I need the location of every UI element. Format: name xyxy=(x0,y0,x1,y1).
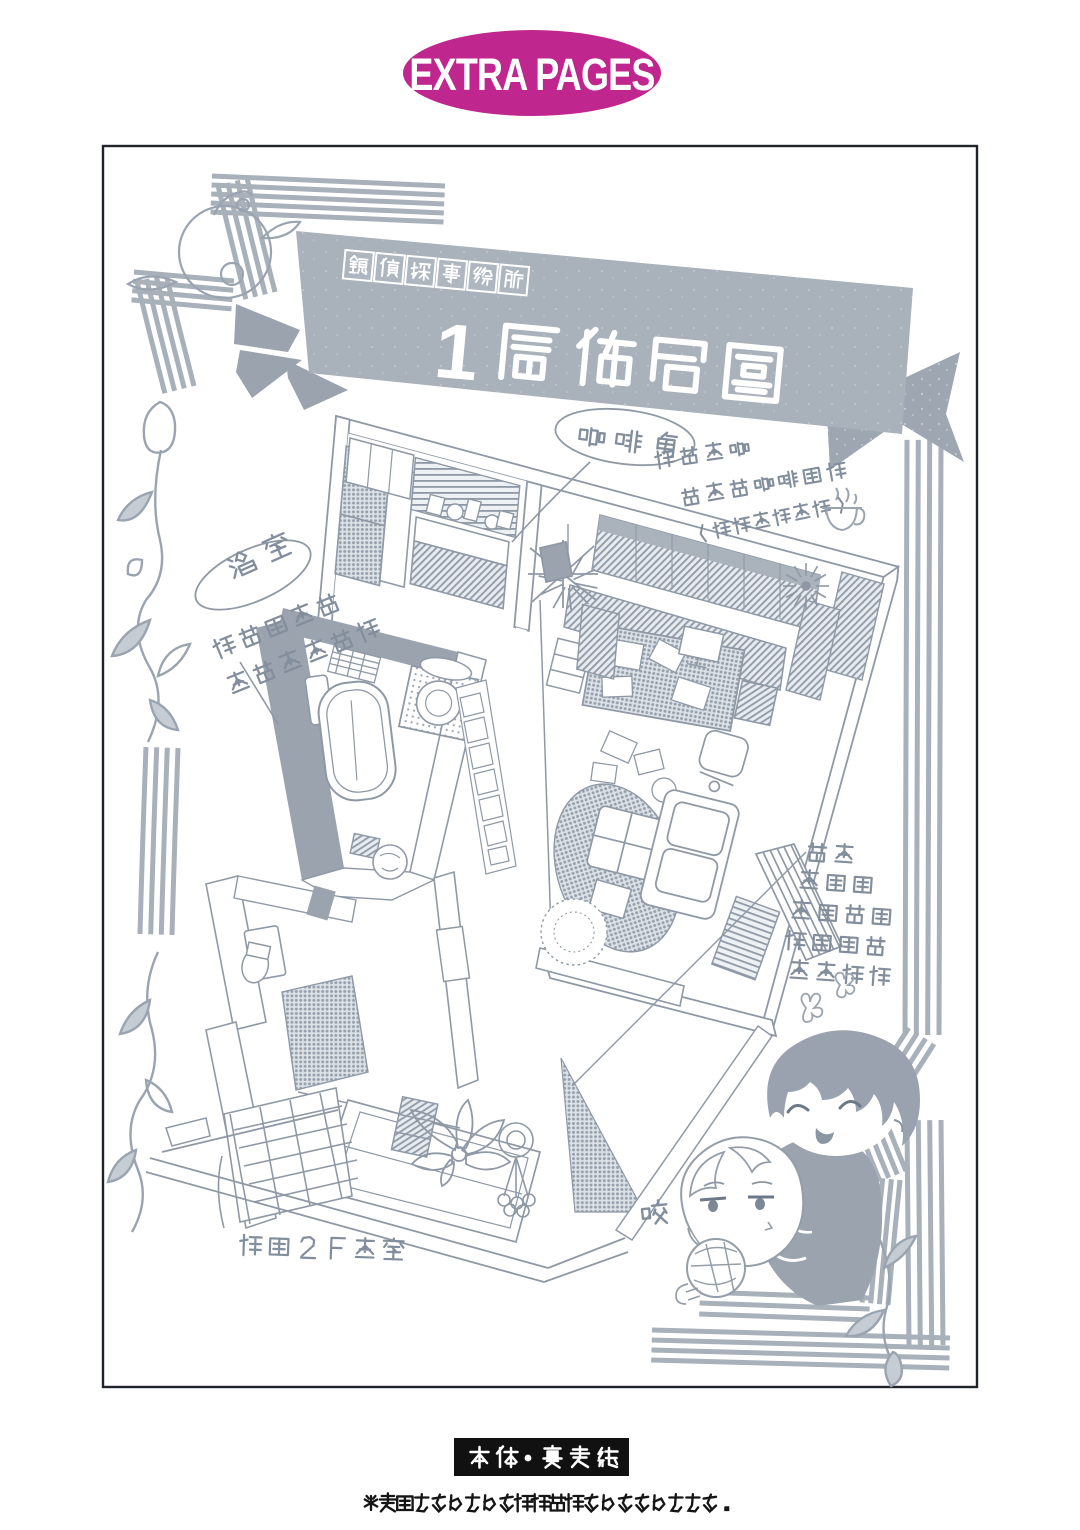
svg-text:EXTRA PAGES: EXTRA PAGES xyxy=(409,49,654,100)
svg-text:1: 1 xyxy=(431,306,482,398)
